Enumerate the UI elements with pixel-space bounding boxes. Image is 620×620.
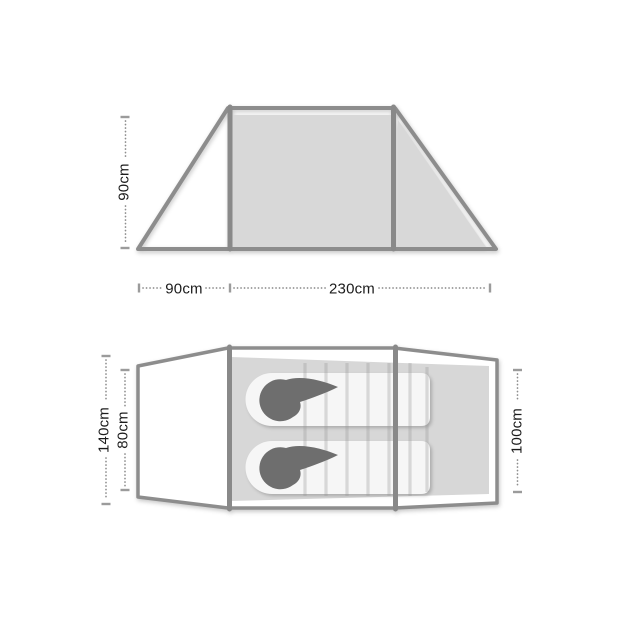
side-view-diagram: 90cm 90cm 230cm [116, 107, 497, 298]
dimension-label-inner-width: 80cm [115, 411, 132, 448]
floor-max-width-dimension: 140cm [96, 356, 113, 504]
dimension-label-porch-length: 90cm [165, 281, 202, 298]
dimension-label-door-end-width: 100cm [509, 408, 526, 454]
floor-door-end-width-dimension: 100cm [509, 370, 526, 492]
rear-panel [398, 120, 486, 247]
side-height-dimension: 90cm [116, 117, 133, 248]
floor-inner-width-dimension: 80cm [115, 370, 132, 490]
side-tent-shape [138, 107, 496, 249]
floor-plan-diagram: 140cm 80cm 100cm [96, 347, 526, 509]
inner-tent-panel [232, 115, 392, 247]
diagram-svg: 90cm 90cm 230cm [0, 0, 620, 620]
dimension-label-inner-length: 230cm [329, 281, 375, 298]
side-length-dimensions: 90cm 230cm [139, 281, 490, 298]
tent-dimensions-diagram: 90cm 90cm 230cm [0, 0, 620, 620]
floor-plan-shape [138, 347, 497, 509]
dimension-label-max-width: 140cm [96, 407, 113, 453]
dimension-label-height: 90cm [116, 163, 133, 200]
